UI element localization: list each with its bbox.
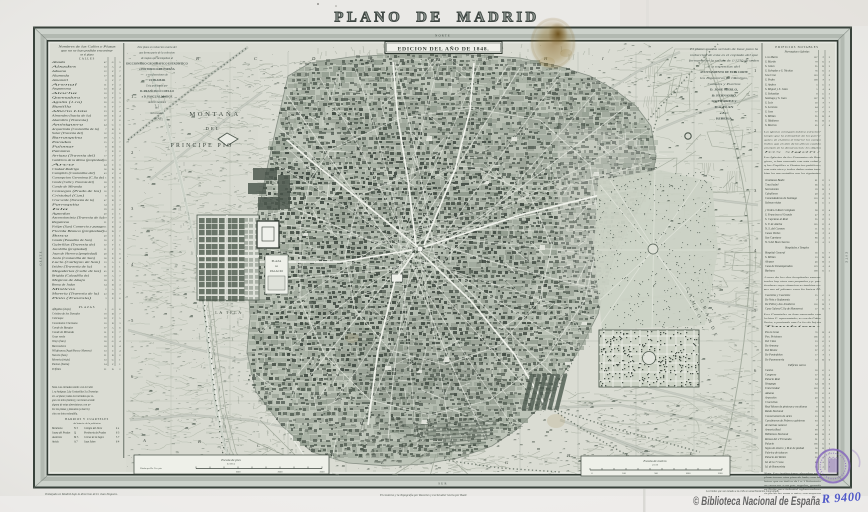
svg-text:S. Sebastian: S. Sebastian bbox=[765, 91, 780, 95]
svg-text:quias; en el plano el interior: quias; en el plano el interior los cuerp… bbox=[764, 138, 822, 141]
svg-text:L: L bbox=[689, 451, 693, 456]
svg-text:y Ordes el Real Colegiata: y Ordes el Real Colegiata bbox=[764, 208, 795, 212]
svg-text:El contorno y la Topografia po: El contorno y la Topografia por Recartes… bbox=[379, 493, 467, 497]
svg-text:Pinto (Travesia): Pinto (Travesia) bbox=[50, 296, 91, 300]
svg-text:Pos.to Grao: Pos.to Grao bbox=[764, 330, 780, 334]
svg-text:Moreria (Travesia de la): Moreria (Travesia de la) bbox=[50, 291, 99, 295]
svg-text:Atocha: Atocha bbox=[49, 91, 79, 95]
svg-text:reduccion de esta es el copiad: reduccion de esta es el copiado del que bbox=[690, 54, 759, 57]
svg-text:Real Museo de pinturas y escul: Real Museo de pinturas y esculturas bbox=[764, 405, 808, 409]
svg-text:2000: 2000 bbox=[278, 471, 284, 474]
svg-text:D: D bbox=[822, 307, 824, 310]
svg-text:Aranceles: Aranceles bbox=[764, 395, 777, 399]
svg-text:Alberto Lista: Alberto Lista bbox=[50, 109, 89, 113]
svg-text:San Cayetano: San Cayetano bbox=[765, 235, 782, 239]
svg-text:Reinas del 2 Fernando: Reinas del 2 Fernando bbox=[764, 437, 792, 441]
svg-text:Ciudad Rodrigo: Ciudad Rodrigo bbox=[52, 167, 80, 171]
svg-text:CALLES: CALLES bbox=[79, 57, 95, 61]
svg-text:S.ta Cruz: S.ta Cruz bbox=[765, 73, 777, 77]
svg-text:F: F bbox=[443, 455, 447, 460]
svg-text:D: D bbox=[112, 230, 114, 233]
svg-text:Campillo (Costanilla del): Campillo (Costanilla del) bbox=[52, 171, 95, 175]
svg-text:S. Ildefonso: S. Ildefonso bbox=[765, 119, 779, 123]
svg-text:G: G bbox=[112, 101, 114, 104]
svg-text:G: G bbox=[112, 61, 114, 64]
svg-text:S. V. de Alarba: S. V. de Alarba bbox=[765, 222, 783, 226]
svg-text:no en el plano con la letra H.: no en el plano con la letra H. bbox=[764, 288, 822, 291]
svg-text:Parroquias e Iglesias: Parroquias e Iglesias bbox=[784, 50, 811, 54]
svg-text:Las iglesias consiguen tedonse: Las iglesias consiguen tedonse estrecnon… bbox=[763, 130, 822, 133]
svg-text:De Pillos y dos Jesuiteros: De Pillos y dos Jesuiteros bbox=[764, 302, 796, 306]
svg-text:de 600 al: de 600 al bbox=[227, 464, 235, 466]
svg-text:G: G bbox=[822, 340, 824, 343]
svg-text:Arquecinda (Costanilla de la): Arquecinda (Costanilla de la) bbox=[51, 127, 99, 131]
svg-text:EDIFICIOS NOTABLES: EDIFICIOS NOTABLES bbox=[775, 45, 818, 49]
svg-text:El plano que ha servido de bas: El plano que ha servido de base para la bbox=[688, 48, 759, 51]
svg-text:formaron en la escala de 1/125: formaron en la escala de 1/1250 de orden bbox=[689, 60, 760, 63]
svg-text:Aguedas: Aguedas bbox=[50, 211, 71, 215]
svg-text:Nota. Las entradas nombr. con: Nota. Las entradas nombr. con la Calle bbox=[51, 386, 94, 389]
svg-text:los sigan:: los sigan: bbox=[764, 150, 822, 153]
svg-text:Cevantoton Cheroana: Cevantoton Cheroana bbox=[52, 321, 78, 325]
svg-text:G: G bbox=[822, 183, 824, 186]
svg-text:A: A bbox=[142, 438, 146, 443]
svg-text:Edificios varios: Edificios varios bbox=[787, 364, 806, 367]
svg-text:Isla: Isla bbox=[48, 207, 70, 211]
svg-text:Los Cuarteles se han marcado c: Los Cuarteles se han marcado con bbox=[762, 313, 822, 316]
svg-text:gun con letra (italica) y no t: gun con letra (italica) y no tienen acor… bbox=[52, 399, 95, 402]
svg-text:Escala de pies: Escala de pies bbox=[220, 458, 241, 462]
svg-text:D.n JUAN: D.n JUAN bbox=[715, 105, 735, 109]
svg-text:Conde de Miranda: Conde de Miranda bbox=[52, 185, 83, 189]
svg-text:F: F bbox=[427, 56, 431, 61]
svg-text:R 9400: R 9400 bbox=[820, 489, 862, 506]
svg-text:LA TELA: LA TELA bbox=[215, 310, 242, 315]
svg-text:Florida Blanca (propiedad): Florida Blanca (propiedad) bbox=[50, 229, 104, 233]
svg-text:G: G bbox=[112, 208, 114, 211]
svg-text:Brigida (Calzadilla de): Brigida (Calzadilla de) bbox=[52, 274, 89, 278]
svg-text:Arenal: Arenal bbox=[49, 82, 78, 86]
svg-text:Del Monte: Del Monte bbox=[764, 348, 778, 352]
svg-text:Cristobal (Can): Cristobal (Can) bbox=[52, 194, 84, 198]
svg-text:Jesuitasas Badre: Jesuitasas Badre bbox=[765, 178, 785, 182]
svg-text:Bastilla: Bastilla bbox=[52, 105, 72, 109]
svg-text:Conde (Calle y Travesia del): Conde (Calle y Travesia del) bbox=[52, 180, 94, 184]
svg-text:A: A bbox=[822, 265, 824, 268]
svg-text:EDICION DEL AÑO DE 1848.: EDICION DEL AÑO DE 1848. bbox=[398, 45, 490, 53]
svg-text:Alcazar: Alcazar bbox=[764, 260, 775, 264]
svg-text:Sacramento: Sacramento bbox=[765, 187, 779, 191]
svg-text:su recorrer a un par regalar,: su recorrer a un par regalar, grande bbox=[764, 484, 822, 487]
svg-text:cito con letra redondilla.: cito con letra redondilla. bbox=[52, 412, 78, 415]
svg-text:MONTAÑA: MONTAÑA bbox=[189, 110, 240, 118]
svg-text:Pos. Prisiones: Pos. Prisiones bbox=[764, 335, 783, 339]
svg-text:Fabrica de tabacos: Fabrica de tabacos bbox=[764, 451, 788, 455]
svg-text:Ruido Nacional: Ruido Nacional bbox=[764, 409, 783, 413]
svg-text:Ascensionista (Travesia de la): Ascensionista (Travesia de la) bbox=[51, 216, 105, 220]
svg-text:Caballeros: Caballeros bbox=[765, 191, 779, 195]
svg-text:Casino: Casino bbox=[765, 368, 774, 372]
svg-text:D: D bbox=[311, 56, 316, 61]
svg-text:7.ma Isabel: 7.ma Isabel bbox=[765, 182, 779, 186]
svg-text:Portineria de Prados: Portineria de Prados bbox=[83, 431, 106, 434]
svg-text:Megaderias (Calle de las): Megaderias (Calle de las) bbox=[50, 269, 101, 273]
svg-text:1000: 1000 bbox=[236, 471, 242, 474]
svg-text:Afligidos (vieja): Afligidos (vieja) bbox=[51, 307, 71, 311]
svg-text:Barcoselera: Barcoselera bbox=[52, 344, 67, 348]
svg-text:A: A bbox=[822, 345, 824, 348]
svg-text:Esta publicado por: Esta publicado por bbox=[145, 85, 168, 88]
svg-text:y sus posesiones de: y sus posesiones de bbox=[145, 74, 168, 77]
svg-text:lleria; e poniendo una I a los: lleria; e poniendo una I a los de Inf.ri… bbox=[764, 321, 822, 324]
svg-text:1000: 1000 bbox=[686, 472, 692, 475]
svg-text:Misticos: Misticos bbox=[50, 287, 77, 291]
svg-text:D: D bbox=[112, 313, 114, 316]
svg-text:Regalona: Regalona bbox=[50, 220, 69, 224]
svg-text:Q: Q bbox=[74, 431, 76, 434]
svg-text:Hospital General: Hospital General bbox=[764, 251, 785, 255]
svg-text:Id. de la 7 Casa: Id. de la 7 Casa bbox=[764, 460, 784, 464]
svg-text:G: G bbox=[112, 308, 114, 311]
svg-text:Colegio del Doce: Colegio del Doce bbox=[84, 427, 103, 430]
svg-text:D: D bbox=[112, 88, 114, 91]
svg-text:Este plano en reduccion cuarta: Este plano en reduccion cuarta del bbox=[136, 46, 176, 49]
svg-text:Paradas: Paradas bbox=[50, 140, 73, 144]
svg-text:G: G bbox=[822, 442, 824, 445]
svg-text:Trabajado en Madrid bajo la di: Trabajado en Madrid bajo la direccion de… bbox=[45, 492, 118, 496]
svg-text:los Ingenieros de Caminos,: los Ingenieros de Caminos, bbox=[700, 77, 749, 80]
svg-text:Argumosa: Argumosa bbox=[50, 87, 71, 91]
svg-text:GUTIERREZ y: GUTIERREZ y bbox=[712, 99, 738, 103]
svg-text:Gran verde: Gran verde bbox=[52, 335, 66, 339]
svg-text:Biblioteca Nacional: Biblioteca Nacional bbox=[765, 432, 788, 436]
svg-text:S. Andres: S. Andres bbox=[765, 82, 777, 86]
svg-text:Palacio: Palacio bbox=[764, 441, 775, 445]
svg-text:A: A bbox=[822, 241, 824, 244]
svg-text:Casa Galera/C.lla de Monserrat: Casa Galera/C.lla de Monserrat bbox=[765, 306, 803, 310]
svg-text:S. Millan: S. Millan bbox=[765, 114, 776, 118]
svg-text:ULTRAMAR: ULTRAMAR bbox=[149, 78, 167, 82]
svg-text:que forma parte de la coleccio: que forma parte de la coleccion bbox=[139, 52, 175, 55]
svg-text:E: E bbox=[380, 460, 384, 465]
svg-text:PLAZAS: PLAZAS bbox=[79, 305, 96, 309]
svg-text:DE: DE bbox=[275, 265, 279, 268]
svg-text:Nuncio (San): Nuncio (San) bbox=[51, 353, 67, 357]
svg-text:Citada que Dn. Fco. pies: Citada que Dn. Fco. pies bbox=[140, 467, 162, 470]
svg-text:A: A bbox=[112, 275, 114, 278]
svg-text:plano tomar otra pina de lado;: plano tomar otra pina de lado; con las bbox=[763, 476, 821, 479]
svg-text:alguna de estas abreviaturas;: alguna de estas abreviaturas; con ar- bbox=[52, 404, 91, 407]
svg-text:Abades: Abades bbox=[49, 65, 78, 69]
svg-text:Tambien:: Tambien: bbox=[764, 325, 822, 328]
svg-text:Bosca: Bosca bbox=[52, 234, 69, 238]
svg-text:Concepcion Geronima (C.lla de): Concepcion Geronima (C.lla de) bbox=[52, 176, 104, 180]
svg-text:Barbara: Barbara bbox=[765, 269, 775, 273]
svg-text:De Pontedebos: De Pontedebos bbox=[764, 353, 783, 357]
svg-text:Cruz verde (Travesia de la): Cruz verde (Travesia de la) bbox=[52, 198, 94, 202]
svg-text:Amistguera: Amistguera bbox=[50, 122, 85, 126]
svg-text:A: A bbox=[822, 236, 824, 239]
svg-text:Amaniel: Amaniel bbox=[50, 78, 68, 82]
svg-text:Barahona: Barahona bbox=[52, 427, 63, 430]
svg-text:Aduana: Aduana bbox=[764, 391, 775, 395]
svg-text:S. Luis: S. Luis bbox=[765, 101, 774, 105]
svg-text:A mas de los dos hospitales en: A mas de los dos hospitales encon- bbox=[762, 276, 821, 279]
svg-text:de mapas que acompañan al: de mapas que acompañan al bbox=[141, 57, 173, 60]
svg-text:D: D bbox=[822, 256, 824, 259]
svg-text:S. Marcos: S. Marcos bbox=[765, 123, 777, 127]
svg-text:Cuarteles y Cuarteles: Cuarteles y Cuarteles bbox=[765, 293, 791, 297]
svg-text:D: D bbox=[822, 97, 824, 100]
svg-text:Las Iglesias de los Convantos: Las Iglesias de los Convantos de Ren- bbox=[763, 156, 822, 159]
svg-text:B: B bbox=[196, 56, 199, 61]
svg-text:Santiago y S. Juan: Santiago y S. Juan bbox=[765, 96, 787, 100]
svg-text:AYUNTAMIENTO DE ESTA CORTE: AYUNTAMIENTO DE ESTA CORTE bbox=[700, 70, 748, 74]
svg-text:gioso, a han marcado con esta: gioso, a han marcado con esta cobal y bbox=[764, 160, 822, 163]
svg-text:S. Jose: S. Jose bbox=[765, 110, 774, 114]
svg-text:mencionado: mencionado bbox=[150, 112, 164, 115]
svg-text:PLANO DE MADRID: PLANO DE MADRID bbox=[334, 10, 539, 26]
svg-text:D. FERNANDO: D. FERNANDO bbox=[712, 93, 737, 97]
svg-text:De Voto y Sudamenia: De Voto y Sudamenia bbox=[764, 297, 790, 301]
svg-text:D: D bbox=[308, 446, 313, 451]
svg-text:Almendro (hacia de la): Almendro (hacia de la) bbox=[51, 113, 91, 117]
svg-text:M 5: M 5 bbox=[74, 436, 79, 439]
svg-text:Juan Sobre: Juan Sobre bbox=[84, 441, 96, 444]
svg-text:Cebruque: Cebruque bbox=[52, 316, 64, 320]
svg-text:Autores tambien: Autores tambien bbox=[147, 101, 167, 104]
svg-text:ATLAS: ATLAS bbox=[152, 118, 161, 121]
svg-text:Del Citas: Del Citas bbox=[764, 339, 777, 343]
svg-text:© Biblioteca Nacional de Españ: © Biblioteca Nacional de España bbox=[693, 496, 820, 508]
svg-text:Arriaza (Travesia del): Arriaza (Travesia del) bbox=[50, 153, 95, 157]
svg-text:Aduana: Aduana bbox=[50, 69, 66, 73]
svg-text:D. JOSE MERLO,: D. JOSE MERLO, bbox=[710, 88, 738, 92]
svg-text:N. S. del Carmen: N. S. del Carmen bbox=[764, 226, 785, 230]
svg-text:Armeria Real: Armeria Real bbox=[764, 428, 781, 432]
svg-text:G: G bbox=[112, 359, 114, 362]
svg-text:D: D bbox=[822, 401, 824, 404]
svg-text:Conde de Barajas: Conde de Barajas bbox=[52, 325, 74, 329]
svg-text:1.ra Maria: 1.ra Maria bbox=[765, 55, 778, 59]
svg-text:S. Cayetano al Real: S. Cayetano al Real bbox=[765, 217, 788, 221]
svg-text:Barranquina: Barranquina bbox=[52, 136, 83, 140]
svg-text:PALACIO: PALACIO bbox=[270, 269, 284, 273]
svg-text:B: B bbox=[198, 439, 201, 444]
svg-text:Canales y Puertas: Canales y Puertas bbox=[708, 83, 741, 86]
svg-text:Lucio (Callejon de San): Lucio (Callejon de San) bbox=[50, 260, 100, 264]
svg-text:Consegos (Prado de los): Consegos (Prado de los) bbox=[52, 189, 101, 193]
svg-text:D: D bbox=[112, 368, 114, 371]
svg-text:Avanicios: Avanicios bbox=[51, 436, 62, 439]
svg-text:Palacio del Retiro: Palacio del Retiro bbox=[764, 455, 787, 459]
svg-text:D: D bbox=[112, 284, 114, 287]
svg-text:Conservatorio de Artes: Conservatorio de Artes bbox=[765, 414, 793, 418]
svg-text:bre los plazas y plazuelas (: bre los plazas y plazuelas (a barrio) bbox=[52, 408, 90, 411]
svg-text:e HISTORICO DE ESPAÑA: e HISTORICO DE ESPAÑA bbox=[139, 67, 175, 71]
svg-text:Oleys (San): Oleys (San) bbox=[52, 339, 66, 343]
svg-text:S. Martin: S. Martin bbox=[765, 60, 776, 64]
svg-text:Quemadura: Quemadura bbox=[52, 96, 81, 100]
svg-text:D: D bbox=[112, 74, 114, 77]
svg-text:G: G bbox=[112, 132, 114, 135]
svg-text:bien los mas notables con los: bien los mas notables con los siguientes… bbox=[764, 172, 821, 175]
svg-text:Solar (Travesia del): Solar (Travesia del) bbox=[52, 131, 83, 135]
svg-text:S. Pedro: S. Pedro bbox=[765, 78, 775, 82]
svg-text:De Armona: De Armona bbox=[764, 344, 779, 348]
svg-text:D: D bbox=[822, 115, 824, 118]
svg-text:D: D bbox=[112, 168, 114, 171]
svg-text:con esta otra y todos debes e: con esta otra y todos debes estan tam- bbox=[764, 168, 821, 171]
svg-text:trados hay otros mas pequeños: trados hay otros mas pequeños y p. par- bbox=[764, 280, 821, 283]
svg-text:S. Gines: S. Gines bbox=[765, 64, 776, 68]
svg-text:Palomar: Palomar bbox=[50, 145, 76, 149]
svg-text:D: D bbox=[822, 433, 824, 436]
svg-text:Palomino: Palomino bbox=[50, 149, 70, 153]
svg-text:Roma de Judas: Roma de Judas bbox=[51, 283, 76, 287]
svg-text:D: D bbox=[822, 65, 824, 68]
svg-text:D: D bbox=[112, 146, 114, 149]
svg-text:SUR: SUR bbox=[438, 482, 447, 486]
svg-text:G: G bbox=[822, 392, 824, 395]
svg-text:E: E bbox=[369, 56, 373, 61]
svg-text:DEL: DEL bbox=[206, 126, 221, 131]
svg-text:ESTE: ESTE bbox=[845, 252, 849, 264]
svg-text:de harinas natural: de harinas natural bbox=[765, 423, 787, 427]
svg-text:A: A bbox=[112, 288, 114, 291]
svg-text:Isidro (Travesia de la): Isidro (Travesia de la) bbox=[50, 265, 92, 269]
svg-text:DICCIONARIO GEOGRAFICO ESTADIS: DICCIONARIO GEOGRAFICO ESTADISTICO bbox=[126, 62, 188, 66]
svg-text:Aguila (1.ra): Aguila (1.ra) bbox=[50, 100, 82, 104]
svg-text:RIBERA: RIBERA bbox=[716, 117, 733, 121]
svg-text:NORTE: NORTE bbox=[435, 33, 451, 37]
svg-text:Jacobilla (propiedad): Jacobilla (propiedad) bbox=[52, 247, 87, 251]
svg-text:PLAZA: PLAZA bbox=[272, 259, 283, 263]
svg-text:1.ra Antiguas 2.da Costanillas: 1.ra Antiguas 2.da Costanillas 3.a Trave… bbox=[52, 390, 98, 393]
svg-text:Comendadoras de Santiago: Comendadoras de Santiago bbox=[765, 196, 798, 200]
svg-text:Gabrillas (Travesia de): Gabrillas (Travesia de) bbox=[52, 242, 95, 246]
svg-text:D: D bbox=[822, 358, 824, 361]
svg-text:Trifilles: Trifilles bbox=[52, 367, 62, 371]
svg-text:Cercas de la Sagra: Cercas de la Sagra bbox=[84, 436, 105, 439]
svg-text:D: D bbox=[822, 188, 824, 191]
svg-text:A: A bbox=[112, 137, 114, 140]
svg-text:N. S del Buen Suceso: N. S del Buen Suceso bbox=[764, 240, 790, 244]
svg-text:Hospitales y Templos: Hospitales y Templos bbox=[784, 247, 809, 250]
svg-text:Carabineros de Pobres y gobier: Carabineros de Pobres y gobierno bbox=[765, 418, 805, 422]
svg-text:H: H bbox=[566, 453, 571, 458]
svg-text:Congreso: Congreso bbox=[765, 372, 777, 376]
svg-text:BARRIOS Y CUARTELES: BARRIOS Y CUARTELES bbox=[65, 417, 109, 421]
svg-text:ticulares cuya situacion es ta: ticulares cuya situacion es tambien co- bbox=[764, 284, 821, 287]
svg-text:Los limites que son tomado a l: Los limites que son tomado a la orilla e… bbox=[705, 490, 780, 493]
svg-text:A: A bbox=[822, 192, 824, 195]
svg-text:del interior de la poblacion: del interior de la poblacion bbox=[73, 422, 101, 425]
svg-text:A: A bbox=[112, 326, 114, 329]
svg-text:G: G bbox=[822, 369, 824, 372]
svg-text:Felipe (San) Comercio y pasage: Felipe (San) Comercio y pasage bbox=[51, 225, 105, 229]
svg-text:S. Francisco el Grande: S. Francisco el Grande bbox=[765, 213, 793, 217]
svg-text:3000: 3000 bbox=[320, 471, 326, 474]
svg-text:Casa de Desamparados: Casa de Desamparados bbox=[765, 264, 793, 268]
svg-text:Aviola: Aviola bbox=[51, 441, 59, 444]
svg-text:Nota. Los instituciones descub: Nota. Los instituciones descubre en el bbox=[762, 472, 821, 475]
svg-text:A: A bbox=[822, 438, 824, 441]
svg-text:S. Millan: S. Millan bbox=[765, 255, 776, 259]
svg-text:S. Miguel y S. Justo: S. Miguel y S. Justo bbox=[765, 87, 788, 91]
svg-text:Villafranca (Aqui/Para y Moren: Villafranca (Aqui/Para y Moreno) bbox=[52, 348, 91, 352]
svg-text:G: G bbox=[822, 197, 824, 200]
svg-text:Juan de Herrera (propiedad): Juan de Herrera (propiedad) bbox=[52, 251, 97, 255]
svg-text:Alameda: Alameda bbox=[50, 73, 70, 77]
svg-text:D. FRANCISCO COELLO: D. FRANCISCO COELLO bbox=[140, 89, 175, 93]
svg-text:OESTE: OESTE bbox=[39, 250, 43, 265]
svg-text:A: A bbox=[822, 336, 824, 339]
svg-text:G: G bbox=[112, 123, 114, 126]
svg-text:Pasion (Santa): Pasion (Santa) bbox=[51, 362, 69, 366]
svg-text:y a espensas del: y a espensas del bbox=[706, 65, 740, 68]
svg-text:indios que en dan de las finca: indios que en dan de las fincas cuando bbox=[764, 142, 822, 145]
svg-text:G: G bbox=[112, 159, 114, 162]
svg-text:A: A bbox=[112, 66, 114, 69]
svg-text:Cristino de los Dorados: Cristino de los Dorados bbox=[52, 312, 81, 316]
svg-text:G: G bbox=[112, 195, 114, 198]
svg-text:Megicas de Abajo: Megicas de Abajo bbox=[50, 278, 85, 282]
svg-text:A: A bbox=[112, 261, 114, 264]
svg-text:Caldeiros de la Reina (propied: Caldeiros de la Reina (propiedad) bbox=[52, 158, 104, 162]
svg-text:q las Capillas u Oratorios pub: q las Capillas u Oratorios publicos; bbox=[764, 164, 821, 167]
svg-text:Grada (Pasadizo de San): Grada (Pasadizo de San) bbox=[52, 238, 92, 242]
svg-text:PRINCIPE PIO: PRINCIPE PIO bbox=[171, 143, 234, 149]
svg-text:Signo de observ. y M.te de pie: Signo de observ. y M.te de piedad bbox=[765, 446, 805, 450]
svg-text:1500: 1500 bbox=[718, 472, 724, 475]
svg-text:Abada: Abada bbox=[50, 60, 66, 64]
svg-text:S. Salvador y S. Nicolas: S. Salvador y S. Nicolas bbox=[765, 69, 794, 73]
svg-text:Sinagoga: Sinagoga bbox=[765, 382, 776, 386]
svg-text:Juana del Prados: Juana del Prados bbox=[52, 431, 70, 434]
svg-text:Alamillo (Travesia): Alamillo (Travesia) bbox=[50, 118, 88, 122]
svg-text:Parroquita: Parroquita bbox=[50, 202, 80, 206]
svg-text:Escala de metros: Escala de metros bbox=[642, 459, 667, 463]
svg-text:Moreria (vieja): Moreria (vieja) bbox=[51, 358, 70, 362]
svg-text:A: A bbox=[822, 88, 824, 91]
svg-text:al 1/20: al 1/20 bbox=[652, 465, 659, 467]
svg-text:Justo (Costanilla de San): Justo (Costanilla de San) bbox=[52, 256, 95, 260]
svg-text:G: G bbox=[112, 340, 114, 343]
svg-text:etc. al plano; todas las inclu: etc. al plano; todas las incluidas que s… bbox=[52, 395, 94, 398]
svg-text:tampo que la estimation de los: tampo que la estimation de los parro- bbox=[764, 134, 821, 137]
svg-text:del: del bbox=[155, 107, 159, 110]
svg-text:y D. PASCUAL MADOZ: y D. PASCUAL MADOZ bbox=[142, 95, 173, 99]
svg-text:S. Lorenzo: S. Lorenzo bbox=[765, 105, 778, 109]
svg-text:Conde de Miranda: Conde de Miranda bbox=[52, 330, 74, 334]
svg-text:De Paonnoneria: De Paonnoneria bbox=[764, 357, 785, 361]
svg-text:D: D bbox=[112, 292, 114, 295]
svg-text:Crucecitas: Crucecitas bbox=[765, 400, 778, 404]
svg-text:Palacio Real: Palacio Real bbox=[764, 377, 780, 381]
svg-text:Universidad: Universidad bbox=[765, 386, 780, 390]
svg-text:Arco: Arco bbox=[48, 162, 76, 166]
svg-text:letras que en italica de l a A: letras que en italica de l a A Voluntari… bbox=[764, 480, 822, 483]
svg-text:Id. de Buenavista: Id. de Buenavista bbox=[764, 464, 786, 468]
svg-text:Casas Verdes: Casas Verdes bbox=[765, 231, 781, 235]
svg-text:emerjan en la demarcacion; los: emerjan en la demarcacion; los objetos bbox=[764, 146, 821, 149]
svg-text:la letra C. representado; es c: la letra C. representado; es con de Caba… bbox=[764, 317, 821, 320]
svg-text:Salesas viejas: Salesas viejas bbox=[765, 201, 782, 205]
